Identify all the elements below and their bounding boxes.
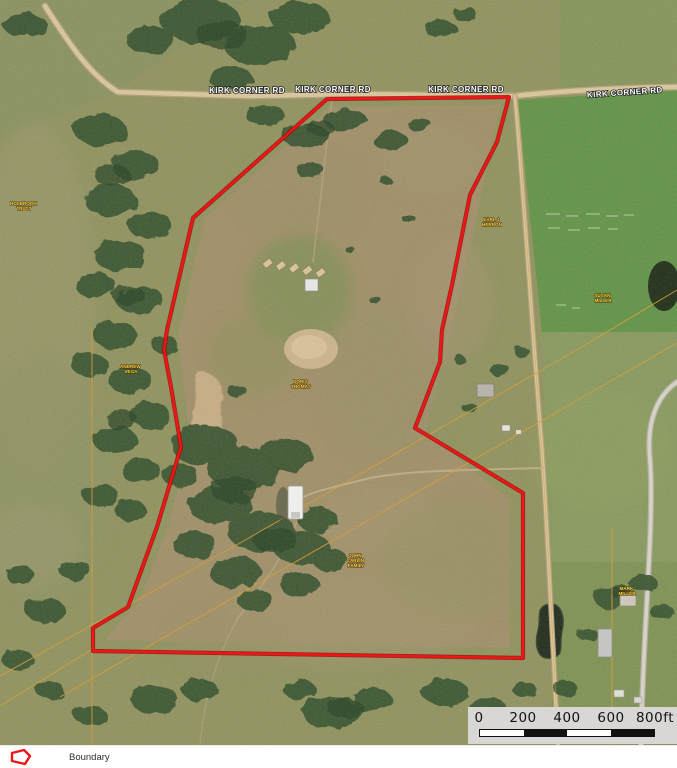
road-label: KIRK CORNER RD	[295, 85, 371, 94]
scale-tick-label: 400	[553, 710, 580, 726]
scale-bar-segments	[479, 729, 655, 737]
scale-segment	[567, 730, 611, 736]
legend-bar: Boundary	[0, 745, 677, 768]
scale-bar: 0 200 400 600 800ft	[468, 707, 677, 744]
road-label: KIRK CORNER RD	[428, 85, 504, 94]
boundary-legend-icon	[9, 748, 33, 766]
parcel-label: EARL J HERRON	[482, 217, 503, 227]
scale-tick-label: 600	[597, 710, 624, 726]
legend-item-label: Boundary	[69, 752, 110, 763]
map-canvas[interactable]: KIRK CORNER RD KIRK CORNER RD KIRK CORNE…	[0, 0, 677, 745]
parcel-label: JOHN CARLIN FAMILY	[347, 553, 366, 568]
scale-segment	[480, 730, 524, 736]
imagery-grain	[0, 0, 677, 745]
scale-tick-label: 200	[509, 710, 536, 726]
scale-segment	[524, 730, 568, 736]
scale-tick-label: 0	[474, 710, 483, 726]
parcel-label: SUSAN MILLER	[594, 293, 612, 303]
map-viewport: KIRK CORNER RD KIRK CORNER RD KIRK CORNE…	[0, 0, 677, 768]
scale-tick-label: 800ft	[636, 710, 674, 726]
scale-segment	[611, 730, 655, 736]
parcel-label: DORIS THOMAS	[291, 379, 311, 389]
parcel-label: MARK MILLER	[618, 586, 636, 596]
road-label: KIRK CORNER RD	[209, 86, 285, 95]
aerial-imagery: KIRK CORNER RD KIRK CORNER RD KIRK CORNE…	[0, 0, 677, 745]
